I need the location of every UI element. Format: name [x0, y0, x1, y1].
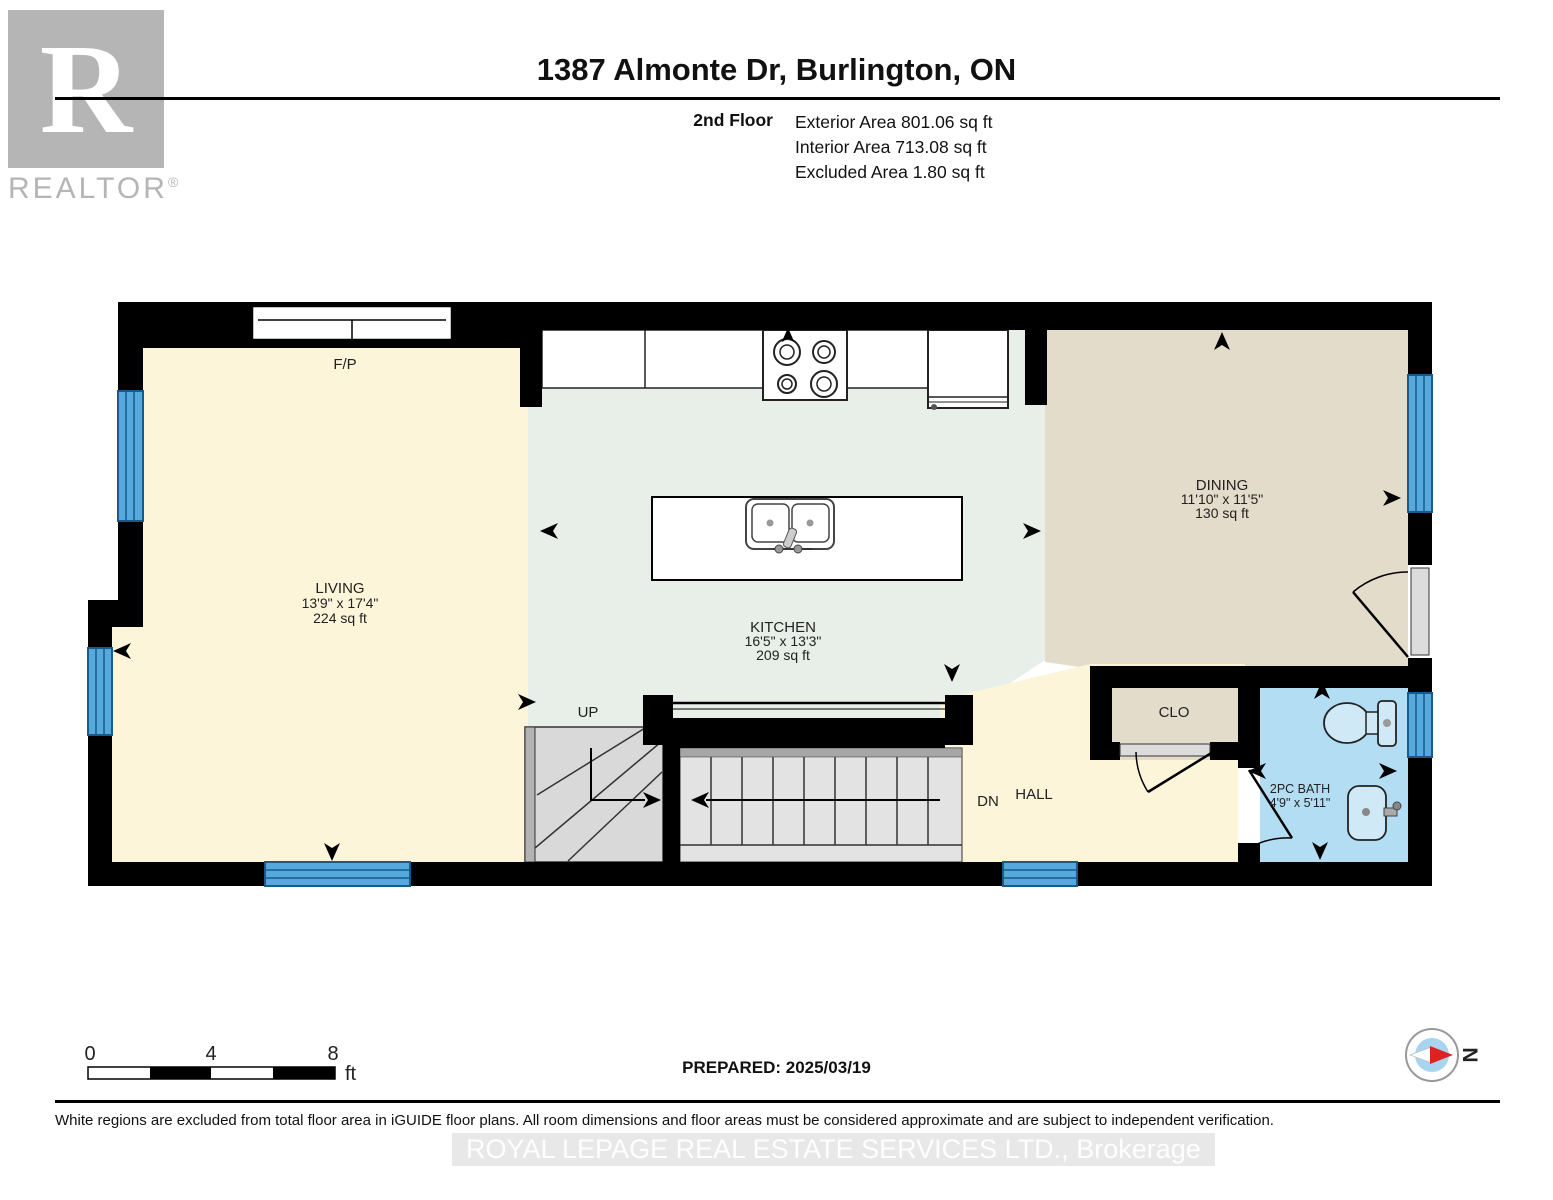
svg-text:209 sq ft: 209 sq ft	[756, 647, 810, 663]
window-dining-right	[1408, 375, 1432, 512]
window-bottom-hall	[1003, 862, 1077, 886]
stairs-up	[525, 727, 663, 862]
toilet-icon	[1324, 701, 1396, 746]
window-left-upper	[118, 391, 143, 521]
double-sink-icon	[746, 499, 834, 553]
prepared-date: PREPARED: 2025/03/19	[0, 1058, 1553, 1078]
closet-label: CLO	[1159, 704, 1190, 721]
floorplan-drawing: F/P LIVING 13'9" x 17'4" 224 sq ft KITCH…	[0, 0, 1553, 1200]
fireplace-label: F/P	[333, 356, 356, 373]
brokerage-watermark: ROYAL LEPAGE REAL ESTATE SERVICES LTD., …	[452, 1133, 1215, 1166]
hall-label: HALL	[1015, 786, 1053, 803]
stairs-up-label: UP	[578, 704, 599, 721]
bath-label: 2PC BATH 4'9" x 5'11"	[1270, 782, 1331, 810]
window-bath-right	[1408, 693, 1432, 757]
svg-text:2PC BATH: 2PC BATH	[1270, 782, 1330, 796]
stove-icon	[763, 330, 847, 400]
window-left-lower	[88, 648, 112, 735]
svg-text:224 sq ft: 224 sq ft	[313, 610, 367, 626]
disclaimer-text: White regions are excluded from total fl…	[55, 1112, 1355, 1129]
stairs-down-label: DN	[977, 793, 999, 810]
svg-text:4'9" x 5'11": 4'9" x 5'11"	[1270, 796, 1331, 810]
svg-text:130 sq ft: 130 sq ft	[1195, 505, 1249, 521]
kitchen-island	[652, 497, 962, 580]
floorplan-page: R REALTOR® 1387 Almonte Dr, Burlington, …	[0, 0, 1553, 1200]
stairs-down	[680, 748, 962, 862]
window-bottom-living	[265, 862, 410, 886]
fireplace-icon	[252, 306, 452, 340]
footer-rule	[55, 1100, 1500, 1103]
fridge-icon	[928, 330, 1008, 410]
kitchen-counter	[542, 330, 930, 388]
svg-text:13'9" x 17'4": 13'9" x 17'4"	[302, 595, 379, 611]
